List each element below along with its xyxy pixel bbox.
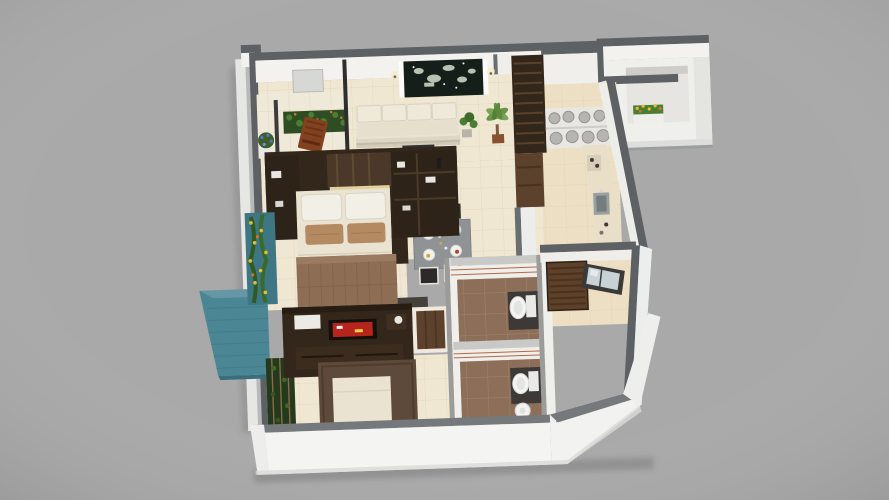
toilet [508,291,541,330]
bedroom-door [412,306,450,353]
canister-shelf [545,106,612,148]
flower-box [633,104,664,124]
shelf-deco [294,315,320,330]
sofa [355,102,460,149]
kitchen-tall-cabinet [511,55,546,154]
kitchen-base-cabinet [515,153,545,208]
vertical-garden-upper [245,212,278,305]
double-bed [294,188,398,319]
tv-screen [328,319,377,341]
wall-art [398,59,488,98]
toilet [510,367,543,404]
bathrooms [444,255,556,431]
kitchen-hob [587,155,602,171]
switch-board [293,69,324,92]
floorplan-render [0,0,889,500]
bathroom-1 [450,255,545,342]
floorplan-screenshot [0,0,889,500]
second-bed [318,359,418,428]
dining-chair [420,267,439,284]
bedside-shelf-right [391,150,460,238]
